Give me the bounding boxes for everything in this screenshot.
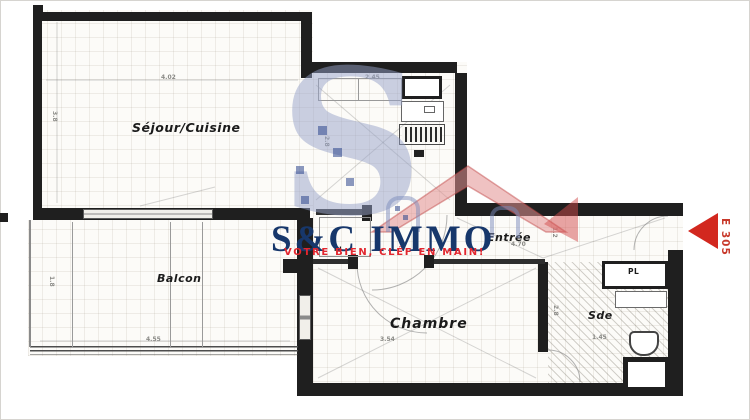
agency-logo-tagline: VOTRE BIEN, CLÉF EN MAIN! [284,247,485,258]
kitchen-sink-bowl [424,106,435,113]
floor-plan: S S&C IMMO VOTRE BIEN, CLÉF EN MAIN! Séj… [0,0,750,420]
dim-balcon: 4.55 [146,336,161,343]
left-edge-tick [0,213,8,222]
sejour-window [83,209,213,219]
balcony-divider [72,222,73,347]
dim-chambre-right: 2.8 [552,305,559,316]
dim-chambre: 3.54 [380,336,395,343]
balcony-left-line [29,220,31,347]
dim-sejour-top: 4.02 [161,74,176,81]
watermark-pixel [301,196,309,204]
sde-shelf [615,291,667,308]
entry-arrow-icon [688,213,718,249]
dim-entree: 4.70 [511,241,526,248]
dim-sde: 1.45 [592,334,607,341]
balcony-divider [202,222,203,347]
wall-sejour-left [33,12,42,218]
balcony-pilaster [283,259,297,273]
dim-entree-right: 1.2 [551,227,558,238]
room-label-sejour: Séjour/Cuisine [132,120,240,135]
dim-sejour-left: 3.8 [51,111,58,122]
watermark-pixel [296,166,304,174]
wall-chambre-sde-divider [538,262,548,352]
watermark-pixel [346,178,354,186]
wall-kitchen-right [455,73,467,207]
closet-label-sde: PL [628,267,639,276]
entry-marker-label: E 305 [719,218,731,256]
chambre-window [299,295,311,340]
dim-balcon-left: 1.8 [48,276,55,287]
wall-right [668,250,683,396]
room-label-balcon: Balcon [157,272,202,285]
watermark-pixel [318,126,327,135]
room-label-sde: Sde [588,309,613,322]
balcony-railing [30,346,298,355]
shower-tray [623,357,670,392]
room-label-chambre: Chambre [390,316,468,332]
watermark-pixel [333,148,342,157]
toilet [629,331,659,356]
wall-sejour-top [33,12,312,21]
